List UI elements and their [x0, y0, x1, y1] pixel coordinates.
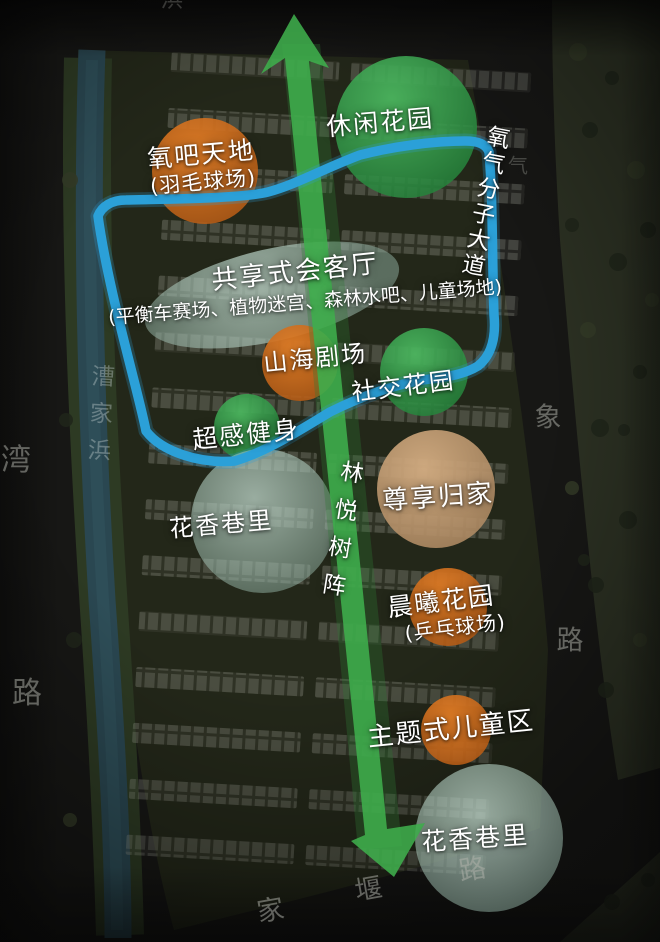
right-road-char-qi: 气 [508, 150, 528, 179]
right-road-char-lu: 路 [557, 619, 584, 658]
tree-array-axis-label: 林悦树阵 [310, 457, 367, 612]
river-name-label: 漕家浜 [78, 363, 118, 476]
zone-label-premium-homecoming: 尊享归家 [381, 473, 495, 518]
bottom-road-char-yan: 堰 [351, 865, 384, 908]
avenue-axis-label: 氧气分子大道 [452, 122, 515, 282]
left-road-char-lu: 路 [12, 668, 42, 712]
landscape-analysis-map: 休闲花园 氧吧天地 (羽毛球场) 共享式会客厅 (平衡车赛场、植物迷宫、森林水吧… [0, 0, 660, 942]
zone-label-themed-children-zone: 主题式儿童区 [366, 700, 537, 754]
zone-label-super-sense-fitness: 超感健身 [190, 409, 301, 456]
top-edge-road-char: 浜 [161, 0, 183, 14]
labels-layer: 休闲花园 氧吧天地 (羽毛球场) 共享式会客厅 (平衡车赛场、植物迷宫、森林水吧… [0, 0, 660, 942]
right-road-char-xiang: 象 [535, 396, 562, 435]
zone-label-leisure-garden: 休闲花园 [325, 98, 436, 143]
zone-label-flower-alley-upper: 花香巷里 [168, 500, 275, 544]
bottom-road-char-jia: 家 [253, 886, 286, 929]
left-road-char-wan: 湾 [1, 435, 31, 479]
